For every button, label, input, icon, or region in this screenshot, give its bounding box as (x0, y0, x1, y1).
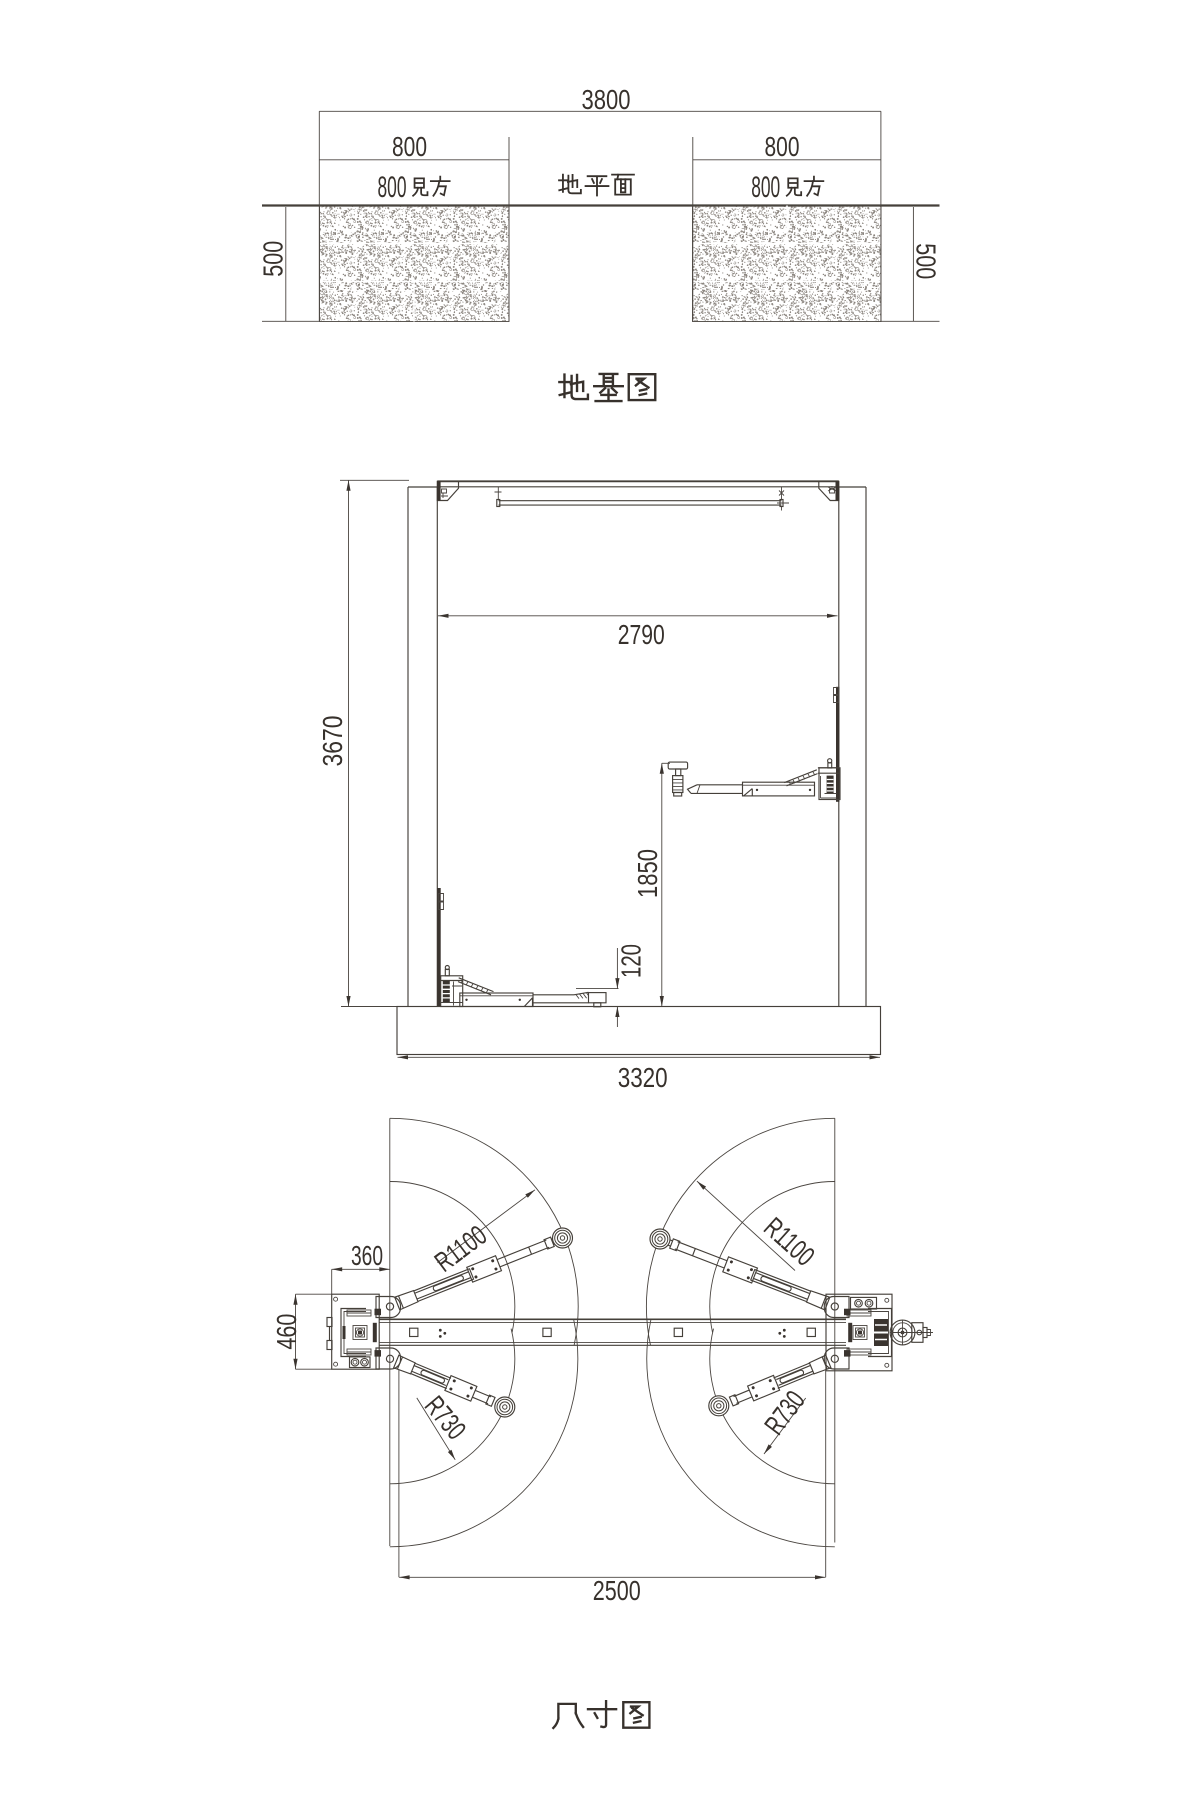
svg-text:500: 500 (258, 241, 289, 277)
svg-text:3670: 3670 (317, 716, 348, 767)
svg-text:800: 800 (765, 131, 800, 162)
svg-text:500: 500 (911, 243, 942, 279)
svg-text:3800: 3800 (582, 84, 631, 115)
svg-text:R730: R730 (758, 1385, 810, 1440)
svg-text:2790: 2790 (618, 619, 665, 650)
svg-text:800: 800 (378, 171, 407, 204)
svg-text:1850: 1850 (632, 849, 663, 898)
svg-text:2500: 2500 (593, 1575, 641, 1606)
svg-text:460: 460 (271, 1314, 302, 1350)
svg-text:800: 800 (392, 131, 427, 162)
svg-text:3320: 3320 (618, 1062, 668, 1093)
svg-text:120: 120 (616, 944, 647, 978)
svg-text:800: 800 (751, 171, 780, 204)
svg-text:R1100: R1100 (758, 1211, 820, 1272)
svg-text:360: 360 (351, 1240, 383, 1271)
